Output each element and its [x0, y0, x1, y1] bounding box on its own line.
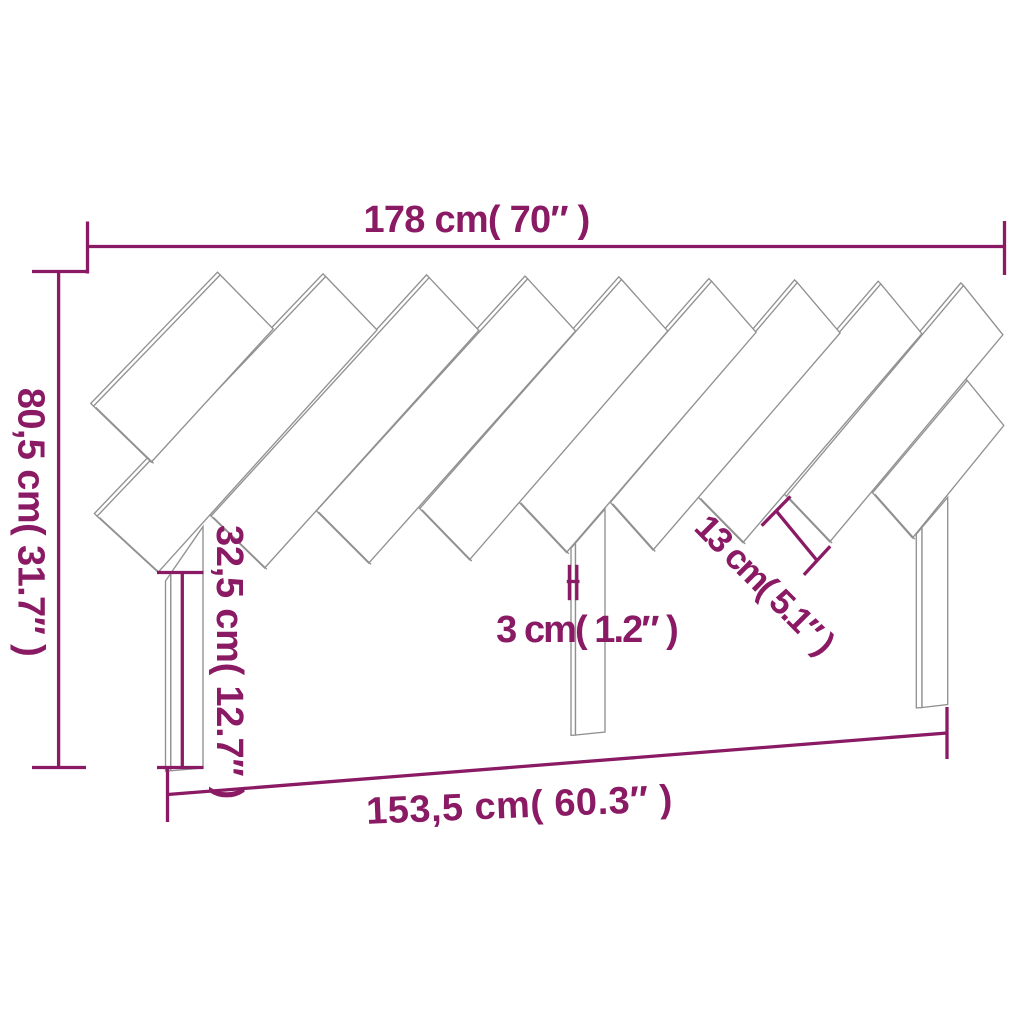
svg-text:178 cm( 70″ ): 178 cm( 70″ )	[363, 199, 589, 241]
svg-text:3 cm( 1.2″ ): 3 cm( 1.2″ )	[496, 609, 677, 651]
svg-text:32,5 cm( 12.7″ ): 32,5 cm( 12.7″ )	[208, 525, 250, 799]
svg-text:80,5 cm( 31.7″ ): 80,5 cm( 31.7″ )	[10, 388, 52, 656]
